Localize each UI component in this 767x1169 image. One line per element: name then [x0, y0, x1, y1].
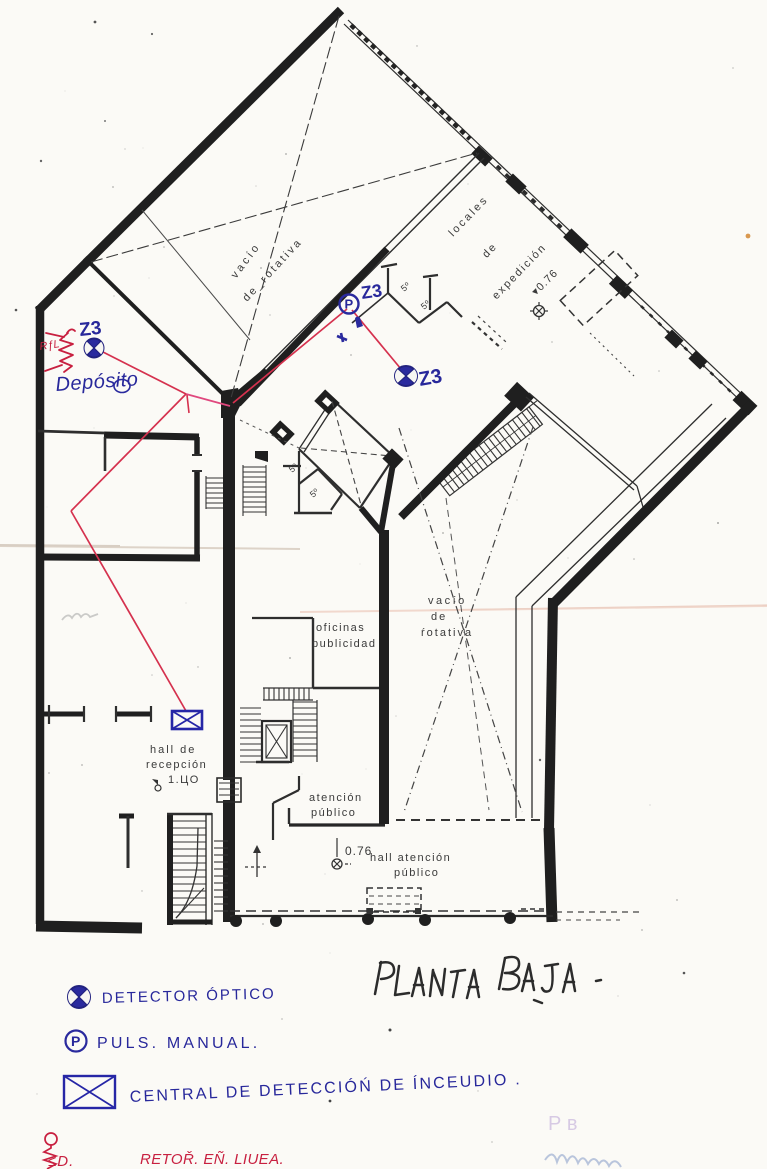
svg-text:Z3: Z3 — [417, 365, 444, 391]
svg-text:ŕotativa: ŕotativa — [421, 627, 473, 639]
svg-text:vacío: vacío — [428, 595, 467, 607]
svg-text:publicidad: publicidad — [312, 638, 377, 650]
svg-text:público: público — [394, 867, 439, 879]
svg-text:RETOŘ. EÑ. LІUEA.: RETOŘ. EÑ. LІUEA. — [140, 1151, 284, 1168]
svg-text:Z3: Z3 — [360, 280, 384, 303]
svg-text:Р в: Р в — [548, 1113, 578, 1135]
svg-text:hall de: hall de — [150, 744, 196, 756]
svg-text:recepción: recepción — [146, 759, 207, 771]
svg-text:1.ЦO: 1.ЦO — [168, 774, 200, 786]
svg-text:de: de — [431, 611, 447, 623]
svg-text:oficinas: oficinas — [316, 622, 365, 634]
svg-text:público: público — [311, 807, 356, 819]
svg-text:≤D.: ≤D. — [48, 1153, 74, 1169]
svg-text:hall atención: hall atención — [370, 852, 451, 864]
svg-text:0.76: 0.76 — [345, 844, 372, 858]
svg-text:atención: atención — [309, 792, 363, 804]
svg-text:P: P — [71, 1033, 80, 1049]
svg-text:Z3: Z3 — [78, 318, 102, 341]
svg-text:PULS. MANUAL.: PULS. MANUAL. — [97, 1035, 260, 1052]
svg-text:P: P — [345, 297, 354, 312]
